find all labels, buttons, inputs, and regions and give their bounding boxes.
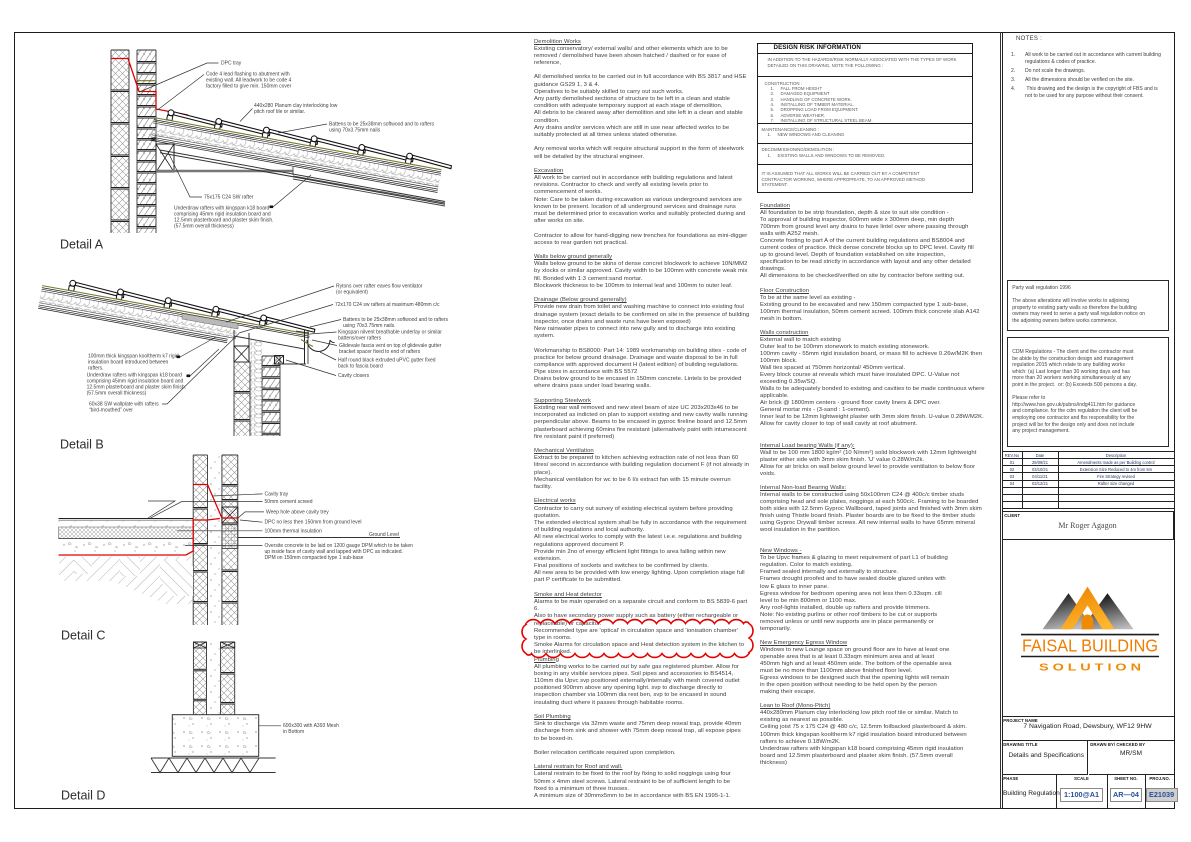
svg-text:S O L U T I O N: S O L U T I O N <box>1039 662 1141 674</box>
svg-text:FAISAL BUILDING: FAISAL BUILDING <box>1022 636 1158 656</box>
